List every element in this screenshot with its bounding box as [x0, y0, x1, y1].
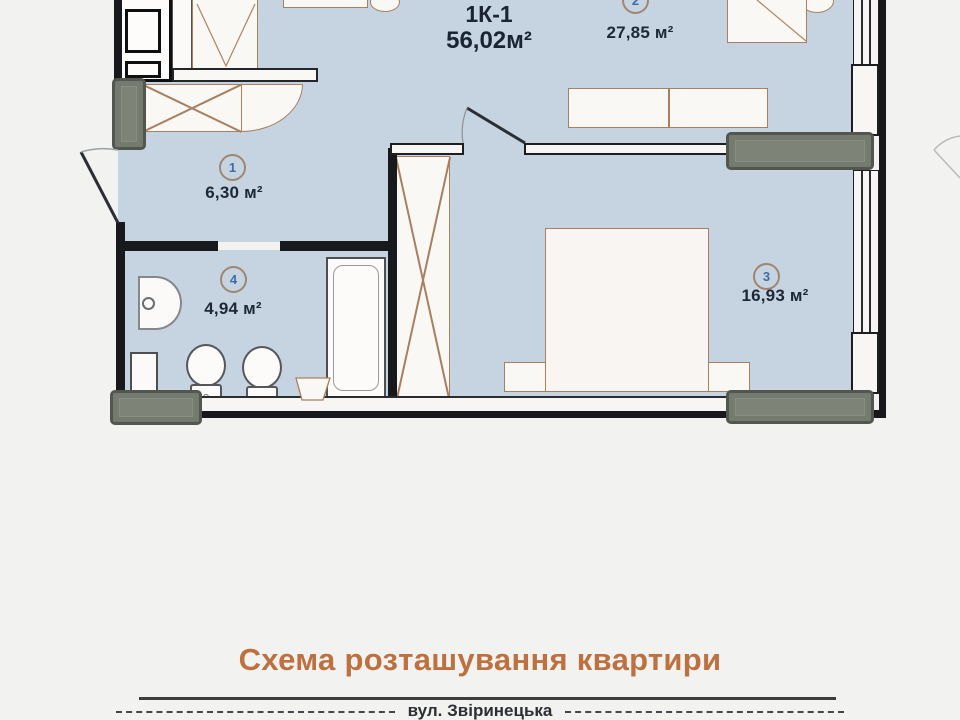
adjacent-plan-arc: [934, 136, 960, 150]
armchair: [727, 0, 807, 43]
kitchen-bar-counter: [172, 68, 318, 82]
apartment-total-area: 56,02м²: [430, 27, 548, 55]
apartment-code: 1К-1: [430, 1, 548, 27]
wall-pier: [851, 64, 879, 136]
hall-closet: [142, 84, 242, 132]
bathroom-door-opening: [218, 242, 280, 250]
apartment-title-block: 1К-1 56,02м²: [430, 1, 548, 55]
wall: [114, 0, 122, 84]
window-sill-bottom-left: [110, 390, 202, 425]
kitchen-cabinet-run: [114, 0, 172, 82]
street-row: вул. Звіринецька: [116, 702, 844, 720]
window-right-top: [853, 0, 879, 66]
window-band-bottom: [125, 396, 726, 411]
window-sill-left: [112, 78, 146, 150]
bedroom-wardrobe: [396, 156, 450, 402]
entrance-door-arc: [81, 149, 118, 152]
kitchen-corner-counter: [192, 0, 258, 70]
wall-pier: [851, 332, 879, 394]
nightstand-left: [504, 362, 546, 392]
wall: [116, 222, 125, 418]
window-right-middle: [853, 170, 879, 334]
wall: [120, 241, 218, 251]
wall: [390, 143, 464, 155]
balcony-door-sill: [726, 132, 874, 170]
room-area-label: 27,85 м²: [592, 23, 688, 43]
bed: [545, 228, 709, 392]
room-area-label: 16,93 м²: [727, 286, 823, 306]
street-name: вул. Звіринецька: [408, 701, 553, 720]
entrance-door-leaf: [81, 152, 118, 223]
dashed-line-left: [116, 711, 395, 713]
window-sill-bottom-right: [726, 390, 874, 424]
nightstand-right: [708, 362, 750, 392]
kitchen-counter-column: [172, 0, 192, 78]
sofa: [568, 88, 768, 128]
room-area-label: 4,94 м²: [185, 299, 281, 319]
wall: [524, 143, 732, 155]
bathroom-cabinet: [130, 352, 158, 394]
wall: [280, 241, 392, 251]
room-number-badge: 1: [219, 154, 246, 181]
dashed-line-right: [565, 711, 844, 713]
dining-table: [283, 0, 368, 8]
floor-plan-page: 1К-1 56,02м² 1 6,30 м² 2 27,85 м² 3 16,9…: [0, 0, 960, 720]
wall: [879, 0, 886, 418]
room-area-label: 6,30 м²: [186, 183, 282, 203]
scheme-caption: Схема розташування квартири: [0, 642, 960, 678]
caption-underline: [139, 697, 836, 700]
adjacent-plan-line: [934, 150, 960, 178]
wall: [388, 148, 397, 404]
room-number-badge: 4: [220, 266, 247, 293]
bathtub: [326, 257, 386, 399]
